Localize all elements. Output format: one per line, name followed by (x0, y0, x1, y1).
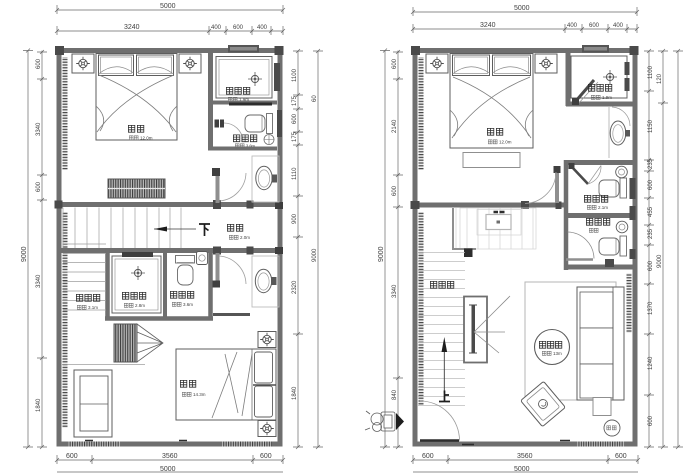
svg-text:1840: 1840 (292, 386, 298, 400)
svg-text:2.8m: 2.8m (135, 303, 145, 308)
svg-text:2140: 2140 (392, 119, 398, 133)
svg-text:600: 600 (615, 453, 627, 460)
svg-text:3340: 3340 (36, 122, 42, 136)
svg-text:9000: 9000 (312, 248, 318, 262)
svg-text:400: 400 (211, 25, 222, 31)
svg-text:2.0m: 2.0m (240, 235, 250, 240)
svg-text:9000: 9000 (657, 254, 663, 268)
svg-text:1240: 1240 (648, 356, 654, 370)
svg-text:600: 600 (648, 415, 654, 426)
svg-text:1.9m: 1.9m (239, 97, 249, 102)
svg-text:3.6m: 3.6m (246, 143, 256, 148)
svg-text:400: 400 (613, 23, 624, 29)
svg-text:12.0m: 12.0m (499, 140, 512, 145)
svg-text:5000: 5000 (514, 466, 530, 473)
svg-text:3560: 3560 (162, 453, 178, 460)
svg-text:400: 400 (257, 25, 268, 31)
svg-text:1150: 1150 (648, 119, 654, 133)
svg-text:9000: 9000 (378, 246, 385, 262)
svg-text:120: 120 (657, 73, 663, 84)
svg-text:600: 600 (292, 113, 298, 124)
svg-text:600: 600 (392, 185, 398, 196)
svg-text:14.3m: 14.3m (193, 392, 206, 397)
svg-text:1370: 1370 (648, 301, 654, 315)
svg-text:840: 840 (392, 389, 398, 400)
svg-text:600: 600 (648, 260, 654, 271)
svg-text:600: 600 (66, 453, 78, 460)
svg-text:5000: 5000 (514, 5, 530, 12)
svg-text:175: 175 (292, 131, 298, 142)
svg-text:13m: 13m (553, 351, 562, 356)
svg-text:400: 400 (567, 23, 578, 29)
svg-text:600: 600 (589, 23, 600, 29)
svg-text:600: 600 (648, 179, 654, 190)
svg-text:600: 600 (392, 58, 398, 69)
svg-text:3340: 3340 (36, 274, 42, 288)
svg-text:600: 600 (422, 453, 434, 460)
svg-text:60: 60 (312, 95, 318, 102)
svg-text:1840: 1840 (36, 398, 42, 412)
svg-text:3560: 3560 (517, 453, 533, 460)
svg-text:175: 175 (292, 95, 298, 106)
svg-text:1100: 1100 (648, 65, 654, 79)
svg-text:600: 600 (260, 453, 272, 460)
svg-text:9000: 9000 (21, 246, 28, 262)
svg-text:3.1m: 3.1m (88, 305, 98, 310)
svg-text:2320: 2320 (292, 280, 298, 294)
svg-text:1110: 1110 (292, 167, 298, 180)
svg-text:455: 455 (648, 206, 654, 217)
svg-text:235: 235 (648, 158, 654, 169)
svg-text:3.6m: 3.6m (183, 302, 193, 307)
svg-text:600: 600 (36, 181, 42, 192)
svg-text:2.1m: 2.1m (598, 205, 608, 210)
svg-text:600: 600 (36, 58, 42, 69)
svg-text:5000: 5000 (160, 3, 176, 10)
svg-text:5000: 5000 (160, 466, 176, 473)
svg-text:1.9m: 1.9m (602, 95, 612, 100)
svg-text:1100: 1100 (292, 68, 298, 82)
svg-text:900: 900 (292, 213, 298, 224)
svg-text:235: 235 (648, 228, 654, 239)
svg-text:600: 600 (233, 25, 244, 31)
svg-text:3340: 3340 (392, 284, 398, 298)
svg-text:3240: 3240 (124, 24, 140, 31)
svg-text:12.0m: 12.0m (140, 136, 153, 141)
svg-text:3240: 3240 (480, 22, 496, 29)
